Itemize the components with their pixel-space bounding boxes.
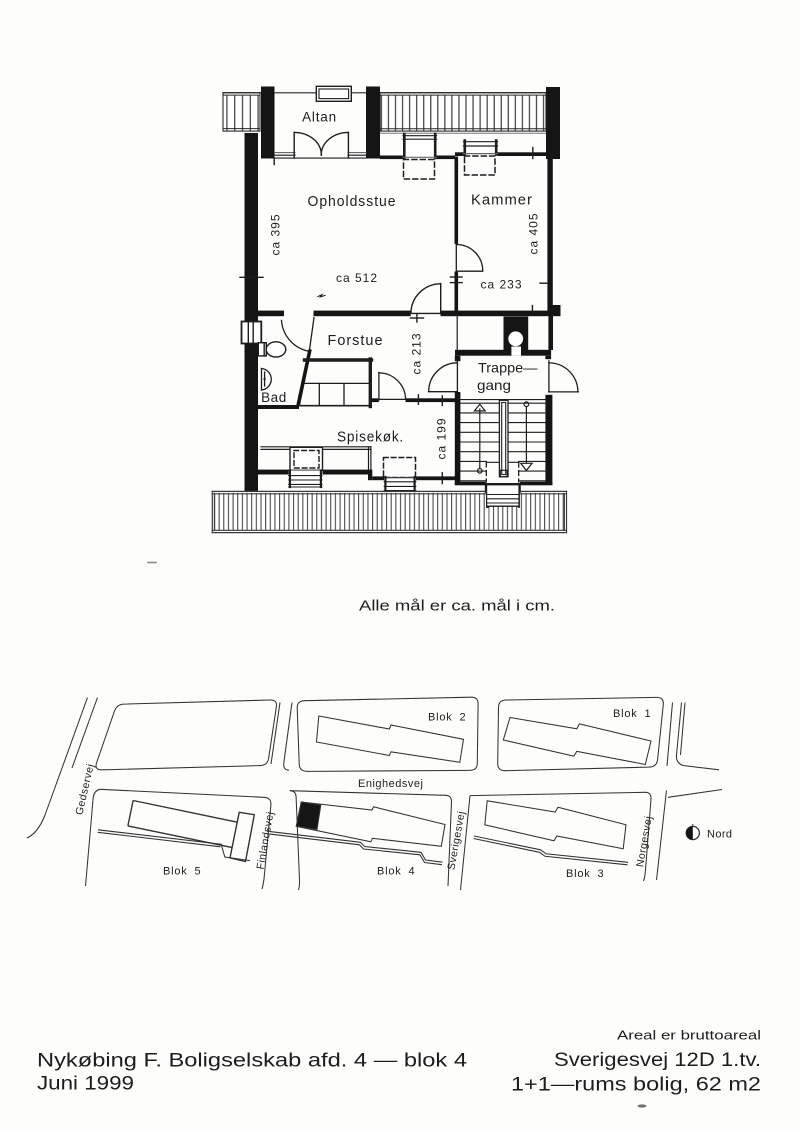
svg-text:Finlandsvej: Finlandsvej (255, 811, 277, 871)
svg-text:ca 395: ca 395 (269, 213, 283, 255)
svg-text:Gedservej: Gedservej (73, 762, 96, 816)
svg-text:Kammer: Kammer (471, 193, 533, 209)
svg-text:Nord: Nord (707, 829, 732, 841)
svg-text:ca 213: ca 213 (410, 332, 424, 374)
svg-text:Blok 1: Blok 1 (613, 708, 651, 720)
svg-text:Spisekøk.: Spisekøk. (337, 430, 404, 446)
svg-text:1+1—rums bolig, 62 m2: 1+1—rums bolig, 62 m2 (511, 1075, 761, 1096)
svg-text:Bad: Bad (261, 390, 287, 405)
svg-text:Alle mål er ca. mål i cm.: Alle mål er ca. mål i cm. (359, 599, 555, 615)
svg-text:Trappe—: Trappe— (478, 360, 538, 376)
svg-text:ca 199: ca 199 (435, 417, 449, 459)
svg-text:Norgesvej: Norgesvej (634, 815, 655, 868)
svg-text:Forstue: Forstue (328, 333, 384, 349)
svg-text:ca 405: ca 405 (527, 212, 541, 254)
svg-text:Blok 4: Blok 4 (377, 866, 415, 878)
svg-text:ca 233: ca 233 (480, 278, 522, 292)
svg-text:Blok 2: Blok 2 (428, 712, 466, 724)
svg-text:Areal er bruttoareal: Areal er bruttoareal (617, 1029, 761, 1043)
svg-text:Nykøbing F. Boligselskab afd.: Nykøbing F. Boligselskab afd. 4 — blok 4 (37, 1051, 468, 1072)
svg-text:Opholdsstue: Opholdsstue (308, 194, 397, 210)
svg-text:Blok 5: Blok 5 (163, 866, 201, 878)
svg-text:Altan: Altan (302, 110, 337, 125)
svg-text:Sverigesvej: Sverigesvej (445, 810, 467, 871)
svg-text:Juni 1999: Juni 1999 (37, 1074, 134, 1095)
svg-text:Sverigesvej 12D 1.tv.: Sverigesvej 12D 1.tv. (554, 1050, 761, 1071)
svg-text:Blok 3: Blok 3 (566, 868, 604, 880)
svg-text:gang: gang (477, 377, 511, 393)
svg-text:ca 512: ca 512 (336, 271, 378, 285)
svg-text:Enighedsvej: Enighedsvej (358, 778, 423, 790)
